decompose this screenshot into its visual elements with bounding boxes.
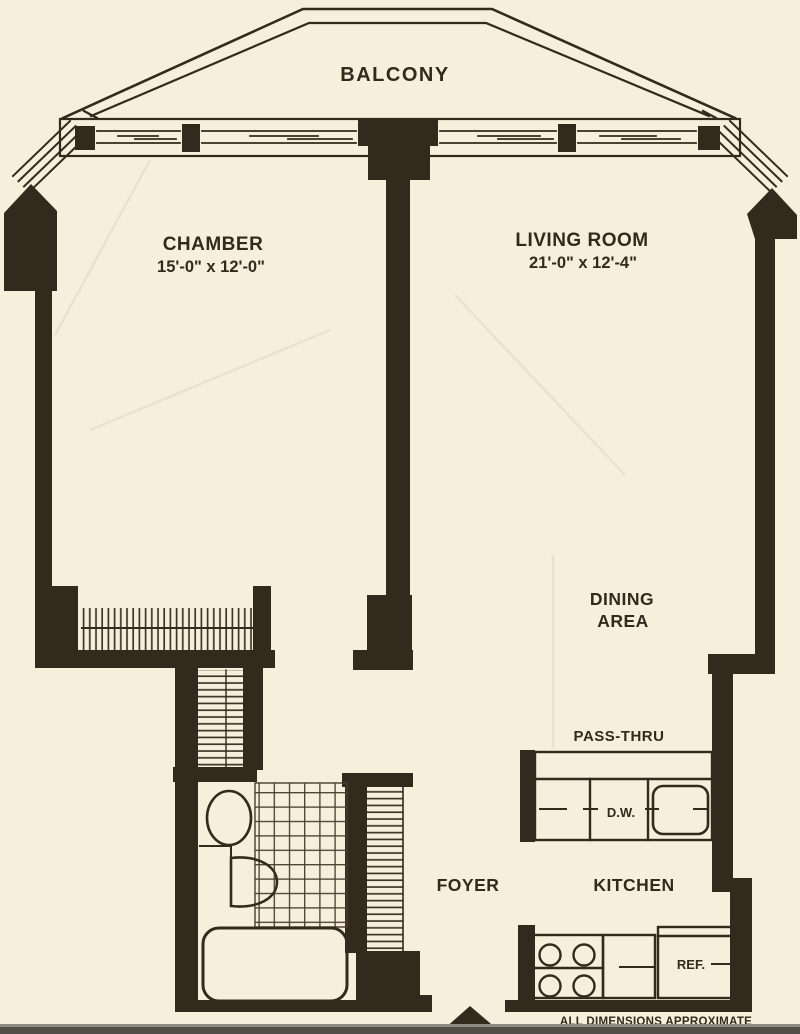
floor-plan-page: BALCONY CHAMBER 15'-0" x 12'-0" LIVING R…	[0, 0, 800, 1034]
bathroom-tile-floor	[255, 783, 347, 927]
hall-closet-east-wall	[243, 668, 263, 770]
pass-thru-label: PASS-THRU	[574, 728, 665, 745]
central-wall-lower	[367, 595, 412, 652]
bathroom-west-wall	[175, 664, 198, 1012]
window-post-2	[182, 124, 200, 152]
hall-closet-shelves	[198, 670, 243, 769]
window-post-3	[558, 124, 576, 152]
foyer-closet-south-wall	[356, 951, 420, 1012]
kitchen-west-wall-upper	[520, 750, 535, 842]
dining-step-wall	[708, 654, 775, 674]
kitchen-label: KITCHEN	[593, 875, 674, 895]
dining-area-label-line2: AREA	[597, 611, 649, 631]
living-room-dimensions: 21'-0" x 12'-4"	[529, 254, 637, 272]
left-exterior-wall	[35, 289, 52, 589]
kitchen-west-wall-lower	[518, 925, 535, 1002]
chamber-dimensions: 15'-0" x 12'-0"	[157, 258, 265, 276]
entry-west-stub	[420, 995, 432, 1012]
living-room-label: LIVING ROOM	[515, 230, 648, 251]
bathroom-east-wall	[345, 785, 367, 953]
right-exterior-wall	[755, 237, 775, 660]
foyer-label: FOYER	[437, 875, 500, 895]
central-partition-wall	[386, 178, 410, 597]
center-pier-top	[358, 118, 438, 146]
central-wall-foot	[353, 650, 413, 670]
dishwasher-label: D.W.	[607, 805, 635, 820]
window-post-4	[698, 126, 720, 150]
dining-area-label-line1: DINING	[590, 589, 654, 609]
kitchen-south-wall	[505, 1000, 752, 1012]
center-pier-base	[368, 144, 430, 180]
left-bottom-corner-wall	[35, 586, 78, 668]
scan-edge-bar	[0, 1027, 800, 1034]
floor-plan-drawing: BALCONY CHAMBER 15'-0" x 12'-0" LIVING R…	[0, 0, 800, 1034]
refrigerator-label: REF.	[677, 957, 705, 972]
foyer-closet-north-wall	[342, 773, 413, 787]
foyer-closet-shelves	[367, 787, 403, 951]
chamber-label: CHAMBER	[163, 234, 264, 255]
balcony-label: BALCONY	[340, 64, 449, 86]
